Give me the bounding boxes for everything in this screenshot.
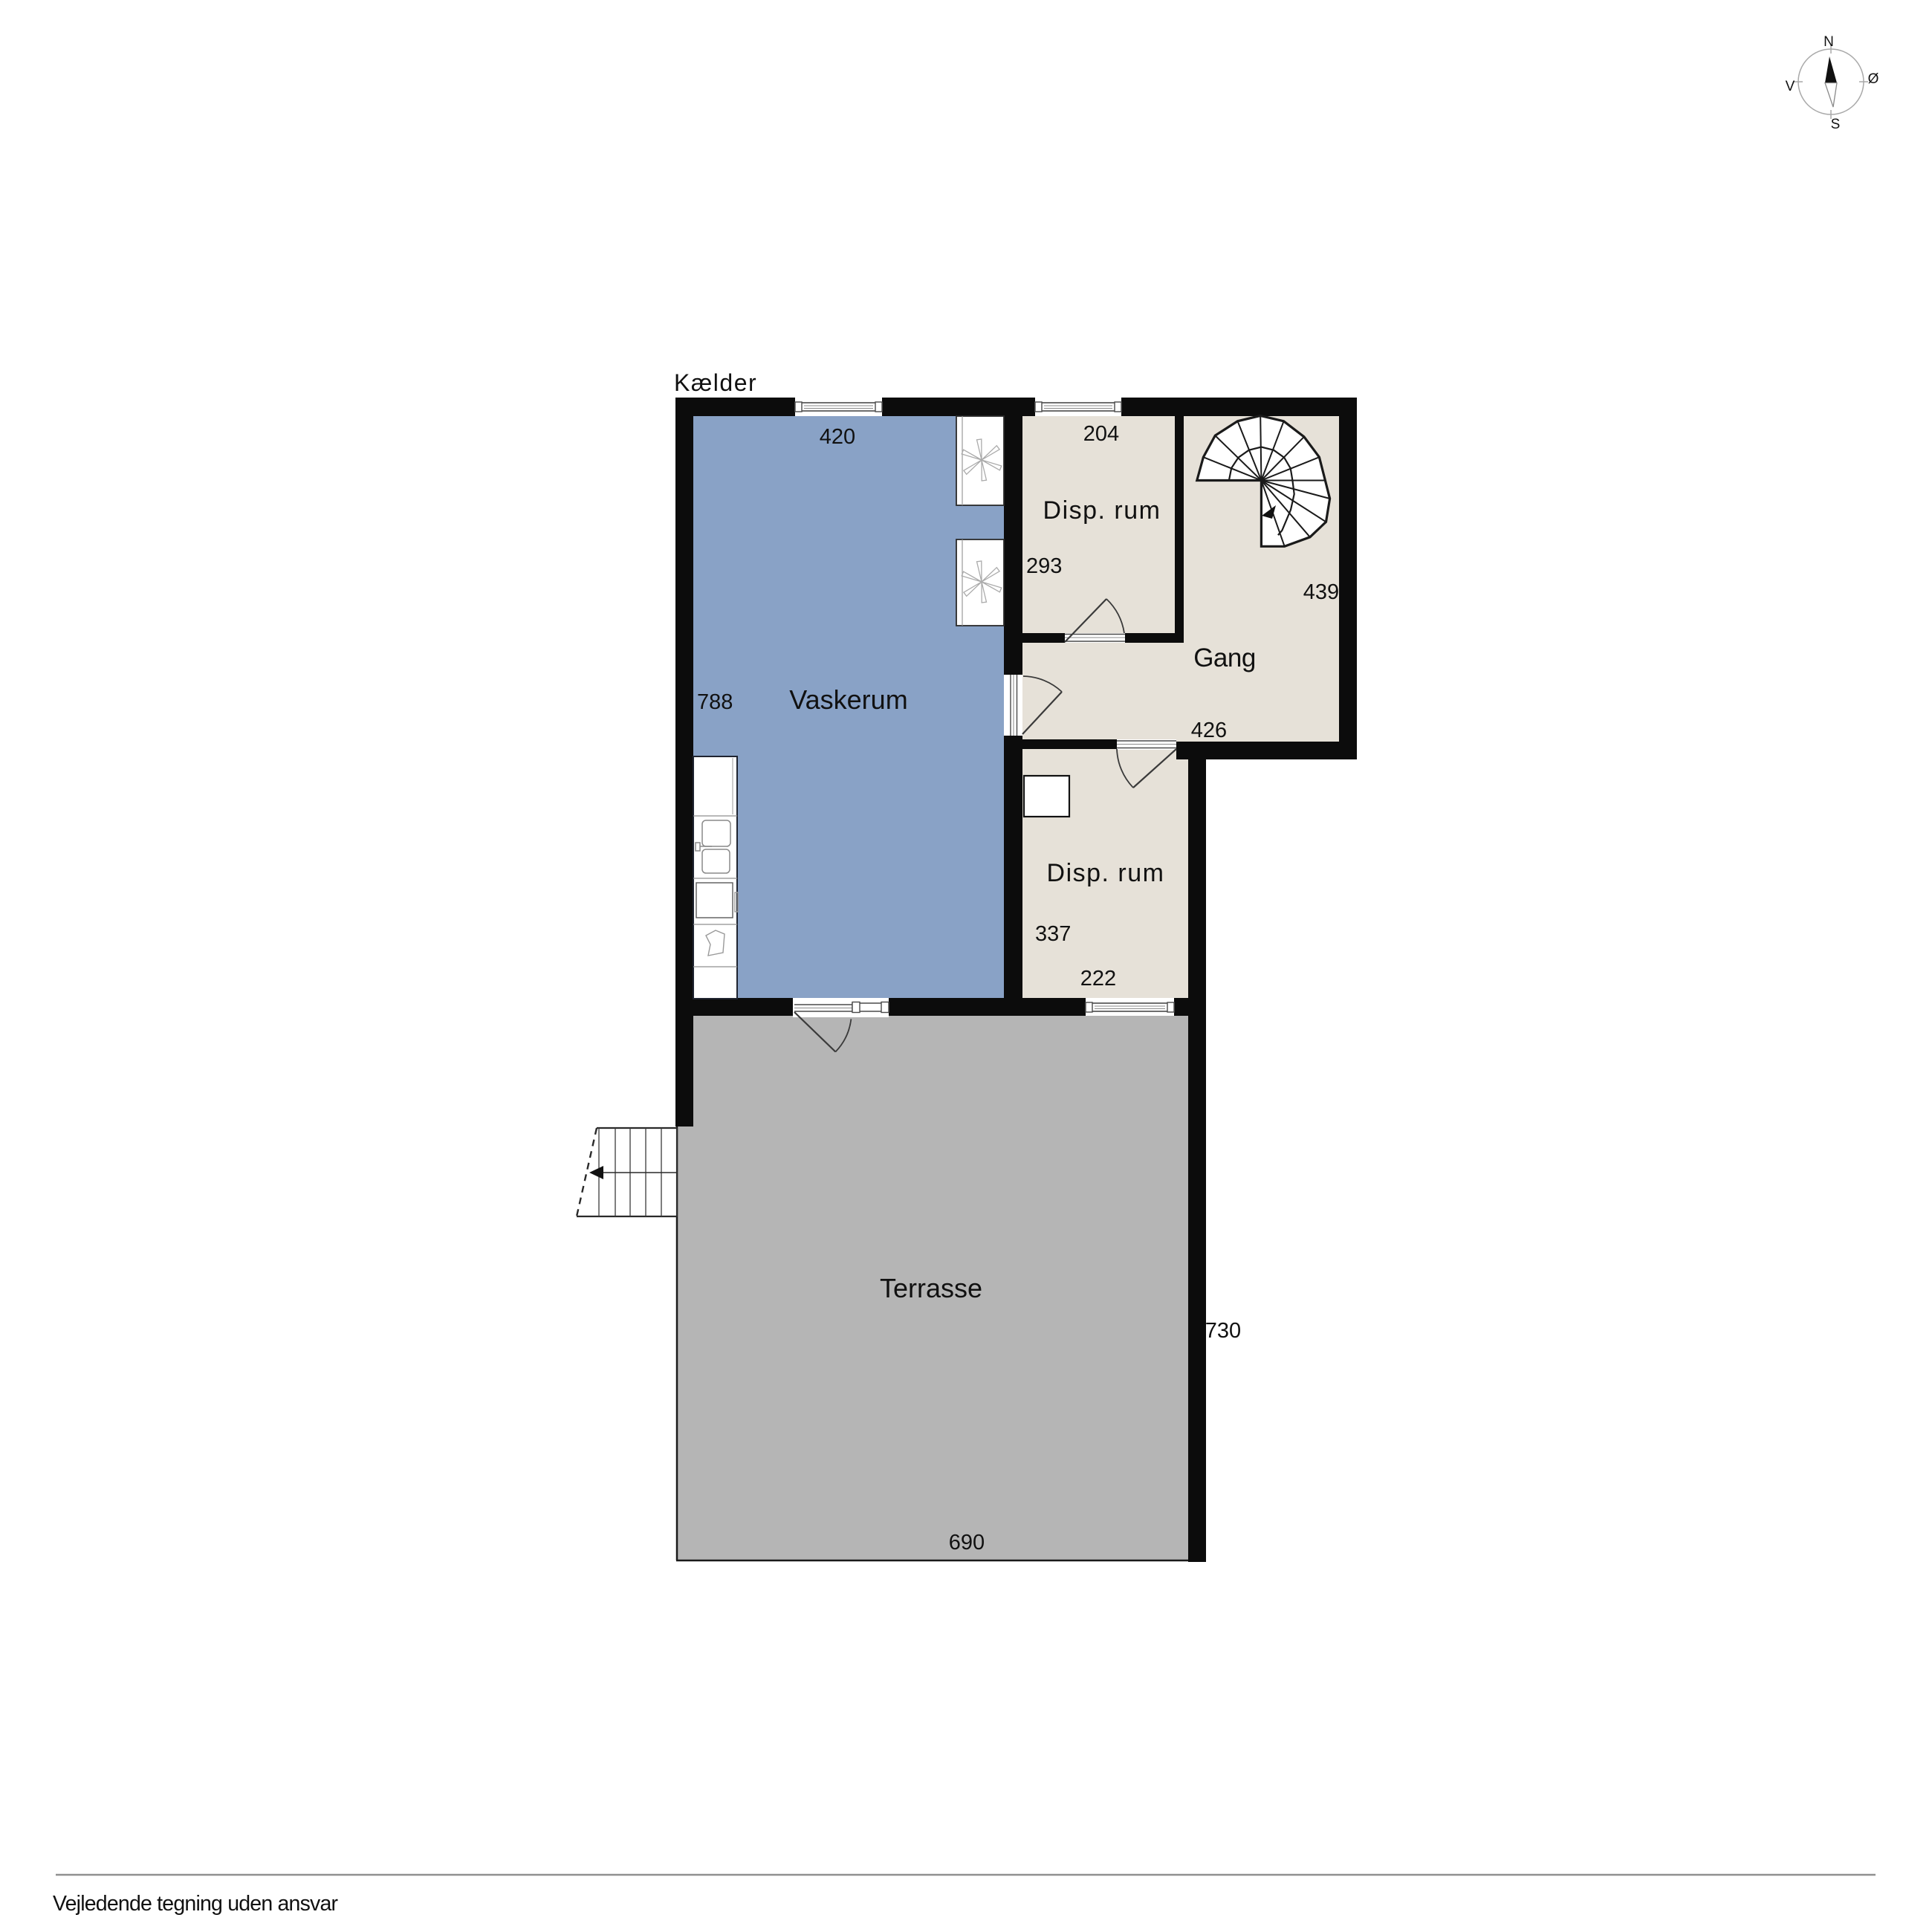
- svg-text:Disp. rum: Disp. rum: [1047, 859, 1165, 887]
- svg-text:S: S: [1831, 117, 1841, 132]
- svg-text:204: 204: [1083, 422, 1119, 446]
- svg-text:222: 222: [1080, 967, 1116, 991]
- svg-text:Vaskerum: Vaskerum: [789, 684, 907, 715]
- svg-text:Vejledende tegning uden ansvar: Vejledende tegning uden ansvar: [53, 1892, 339, 1916]
- svg-text:Terrasse: Terrasse: [880, 1273, 982, 1303]
- svg-text:730: 730: [1205, 1319, 1241, 1343]
- svg-text:Ø: Ø: [1868, 71, 1879, 87]
- svg-text:V: V: [1786, 79, 1795, 94]
- svg-text:Gang: Gang: [1193, 644, 1256, 672]
- svg-text:337: 337: [1035, 922, 1071, 946]
- svg-text:420: 420: [820, 425, 855, 449]
- svg-text:Kælder: Kælder: [674, 369, 757, 396]
- svg-text:N: N: [1824, 34, 1834, 50]
- svg-text:426: 426: [1191, 719, 1227, 742]
- svg-text:439: 439: [1303, 580, 1339, 604]
- svg-text:Disp. rum: Disp. rum: [1043, 496, 1161, 525]
- svg-text:788: 788: [697, 690, 733, 714]
- svg-text:690: 690: [949, 1531, 985, 1555]
- svg-text:293: 293: [1026, 554, 1062, 578]
